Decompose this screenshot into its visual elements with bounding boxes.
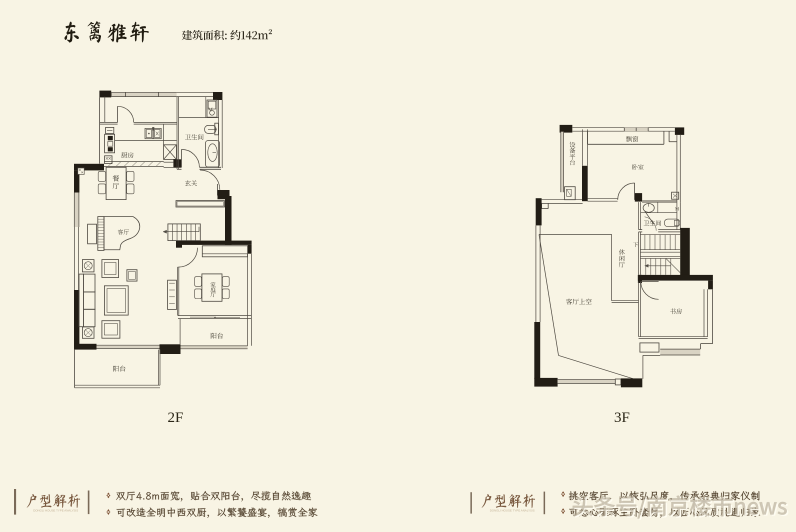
svg-text:2F: 2F [168, 410, 184, 426]
svg-text:DONGLI HOUSE TYPE ANALYSIS: DONGLI HOUSE TYPE ANALYSIS [490, 509, 535, 513]
svg-text:DONGLI HOUSE TYPE ANALYSIS: DONGLI HOUSE TYPE ANALYSIS [33, 508, 78, 512]
svg-text:3F: 3F [614, 410, 630, 426]
